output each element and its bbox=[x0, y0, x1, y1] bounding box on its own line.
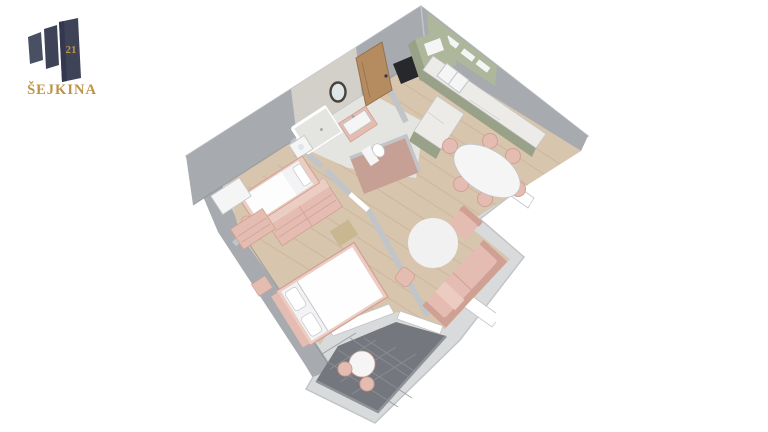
balcony-table bbox=[349, 351, 375, 377]
floor-plan-canvas: 21 ŠEJKINA bbox=[0, 0, 768, 432]
round-mirror bbox=[331, 83, 346, 102]
logo-wordmark: ŠEJKINA bbox=[27, 81, 97, 98]
balcony-chair bbox=[338, 362, 352, 376]
logo-number: 21 bbox=[66, 44, 77, 56]
logo-building-slab-middle bbox=[44, 25, 59, 69]
door-handle bbox=[384, 74, 387, 77]
balcony-chair bbox=[360, 377, 374, 391]
logo-building-slab-left bbox=[28, 32, 43, 64]
round-rug bbox=[408, 218, 458, 268]
